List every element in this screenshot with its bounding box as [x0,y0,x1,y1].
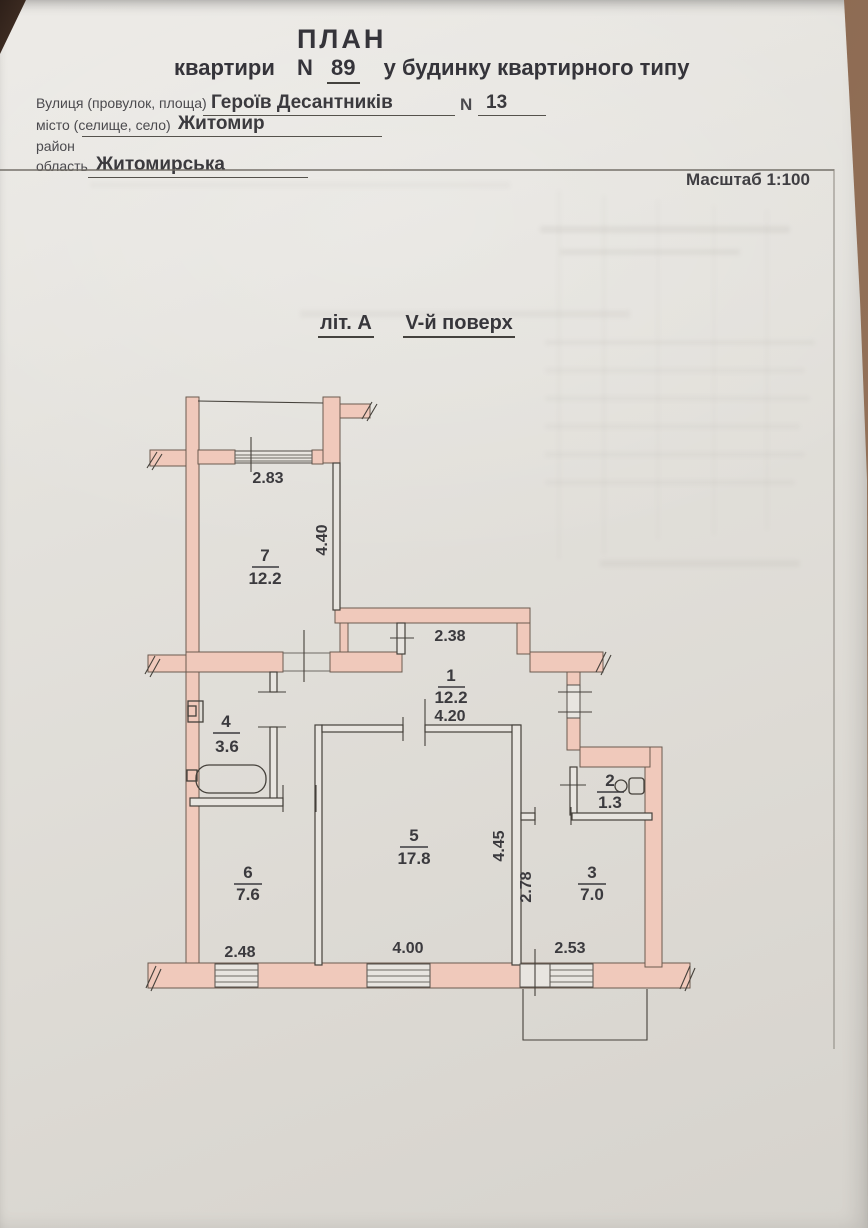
wall-segment [186,652,283,672]
room-number: 2 [605,771,614,790]
document-title: ПЛАН [297,24,386,55]
room-number: 6 [243,863,252,882]
document-subtitle: квартири N 89 у будинку квартирного типу [174,55,689,84]
balcony-top-outline [198,401,323,403]
balcony-bottom-outline [523,989,647,1040]
partition [512,725,521,965]
wall-segment [567,718,580,750]
house-number-value: 13 [478,92,546,116]
dimension-labels: 2.83 4.40 2.38 4.20 4.45 2.78 2.48 4.00 … [224,470,585,961]
wall-break-marks [145,402,695,991]
wall-segment [645,747,662,967]
partition [572,813,652,820]
room-number: 4 [221,712,231,731]
subtitle-prefix: квартири [174,55,275,80]
room-label-6: 6 7.6 [234,863,262,904]
wall-segment [580,747,650,767]
partition [521,813,535,820]
partition [322,725,403,732]
room-area: 17.8 [397,849,430,868]
scanned-floor-plan-page: ПЛАН квартири N 89 у будинку квартирного… [0,0,868,1228]
dimension-value: 2.53 [554,940,585,957]
room-label-4: 4 3.6 [213,712,240,756]
room-number: 7 [260,546,269,565]
wall-segment [335,608,530,623]
wall-segment [323,397,340,463]
apartment-number-value: 89 [327,55,359,84]
house-number-label: N [460,95,472,115]
city-field-label: місто (селище, село) [36,117,171,133]
dimension-value: 4.20 [434,708,465,725]
wall-segment [186,397,199,988]
partition [333,463,340,610]
floor-plan: 7 12.2 1 12.2 4 3.6 2 1.3 5 17.8 6 7.6 [142,388,698,1052]
door-opening [283,653,330,671]
bleed-through-artifact [545,368,805,373]
subtitle-suffix: у будинку квартирного типу [384,55,690,80]
room-label-1: 1 12.2 [434,666,467,707]
partition [270,672,277,692]
bleed-through-artifact [90,182,510,188]
room-label-3: 3 7.0 [578,863,606,904]
region-field-label: область [36,158,88,174]
scale-label: Масштаб 1:100 [686,170,810,190]
city-field-value: Житомир [170,113,382,137]
dimension-value: 4.45 [491,830,508,861]
street-field-label: Вулиця (провулок, площа) [36,95,207,111]
room-area: 7.6 [236,885,260,904]
dimension-value: 4.00 [392,940,423,957]
room-number: 3 [587,863,596,882]
dimension-value: 2.48 [224,944,255,961]
wall-segment [340,404,370,418]
wall-segment [530,652,603,672]
outer-walls [148,397,690,988]
room-number: 1 [446,666,455,685]
door-openings-and-ticks [251,437,592,996]
apartment-number-label: N [297,55,313,80]
room-area: 12.2 [248,569,281,588]
dimension-value: 2.78 [518,871,535,902]
windows [215,451,593,987]
bleed-through-artifact [545,340,815,345]
bleed-through-artifact [540,226,790,233]
partition [190,798,283,806]
liter-label: літ. А [318,312,374,338]
room-label-2: 2 1.3 [597,771,624,812]
partition [270,727,277,802]
room-area: 1.3 [598,793,622,812]
wall-segment [517,623,530,654]
room-number: 5 [409,826,418,845]
region-field-value: Житомирська [88,154,308,178]
partition [315,725,322,965]
dimension-value: 4.40 [314,524,331,555]
room-area: 12.2 [434,688,467,707]
page-fold-line [833,169,835,1049]
wall-segment [312,450,323,464]
room-label-5: 5 17.8 [397,826,430,868]
wall-segment [198,450,235,464]
wall-segment [330,652,402,672]
plan-caption: літ. А V-й поверх [318,312,515,335]
floor-label: V-й поверх [403,312,514,338]
room-area: 3.6 [215,737,239,756]
entrance-door-opening [567,685,580,718]
dimension-value: 2.83 [252,470,283,487]
partition [425,725,520,732]
district-field-label: район [36,138,75,154]
district-field-value [82,135,296,137]
dimension-value: 2.38 [434,628,465,645]
room-area: 7.0 [580,885,604,904]
room-label-7: 7 12.2 [248,546,281,588]
wall-segment [340,623,348,654]
